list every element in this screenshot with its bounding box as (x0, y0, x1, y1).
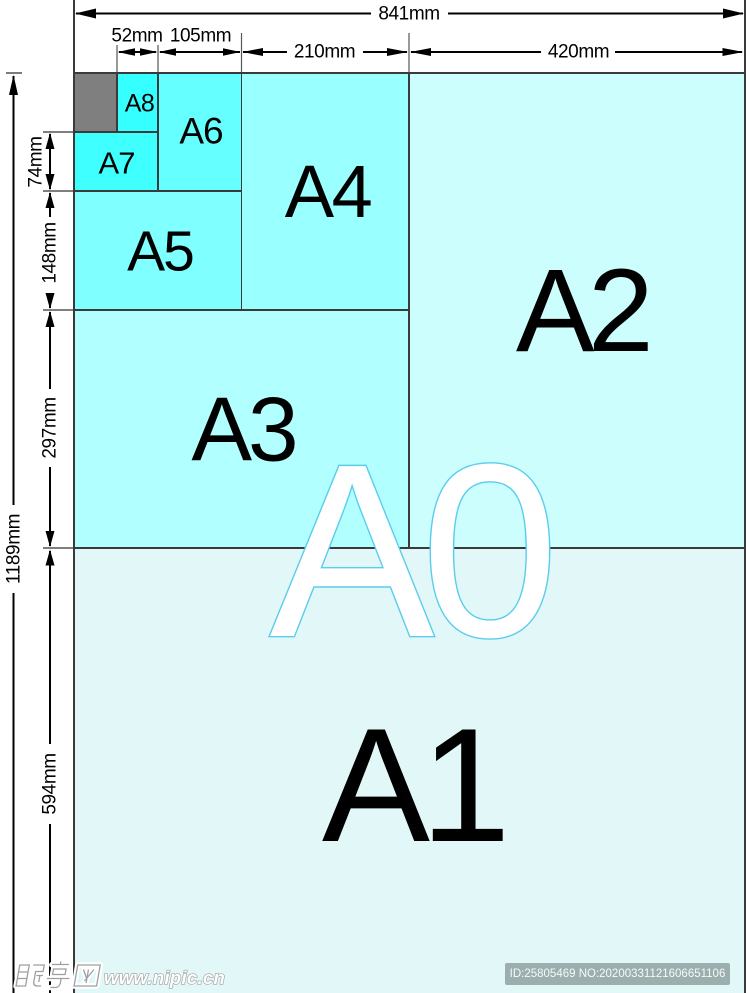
svg-text:A0: A0 (270, 413, 550, 689)
svg-text:www.nipic.cn: www.nipic.cn (104, 967, 225, 988)
